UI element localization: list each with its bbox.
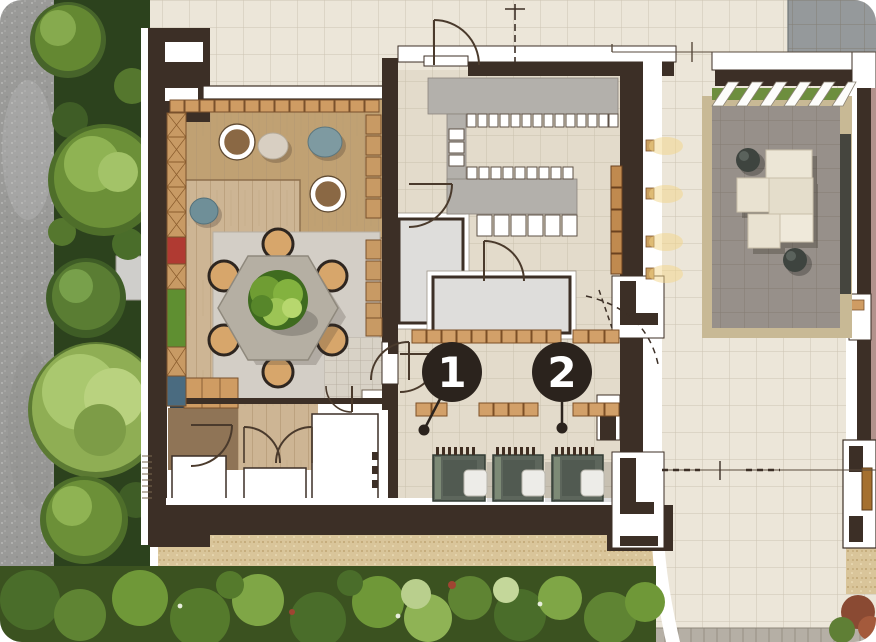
marker-1-label: 1	[437, 348, 466, 397]
chair	[464, 470, 487, 496]
courtyard	[702, 82, 856, 338]
tree	[40, 476, 128, 564]
tree	[46, 258, 126, 338]
bluegray-tile-patch	[788, 0, 876, 56]
chair	[581, 470, 604, 496]
round-basin	[219, 124, 255, 160]
marker-2-dot	[557, 423, 568, 434]
chair	[522, 470, 545, 496]
workstation-desk	[552, 447, 612, 502]
workstations	[433, 447, 612, 502]
tree	[30, 2, 106, 78]
blue-mat	[167, 376, 186, 406]
marker-1-dot	[419, 425, 430, 436]
green-mat	[167, 289, 186, 347]
courtyard-bench	[840, 134, 851, 294]
red-mat	[167, 237, 186, 264]
round-basin	[310, 176, 346, 212]
floor-plan: 1 2	[0, 0, 876, 642]
marker-2-label: 2	[547, 348, 576, 397]
